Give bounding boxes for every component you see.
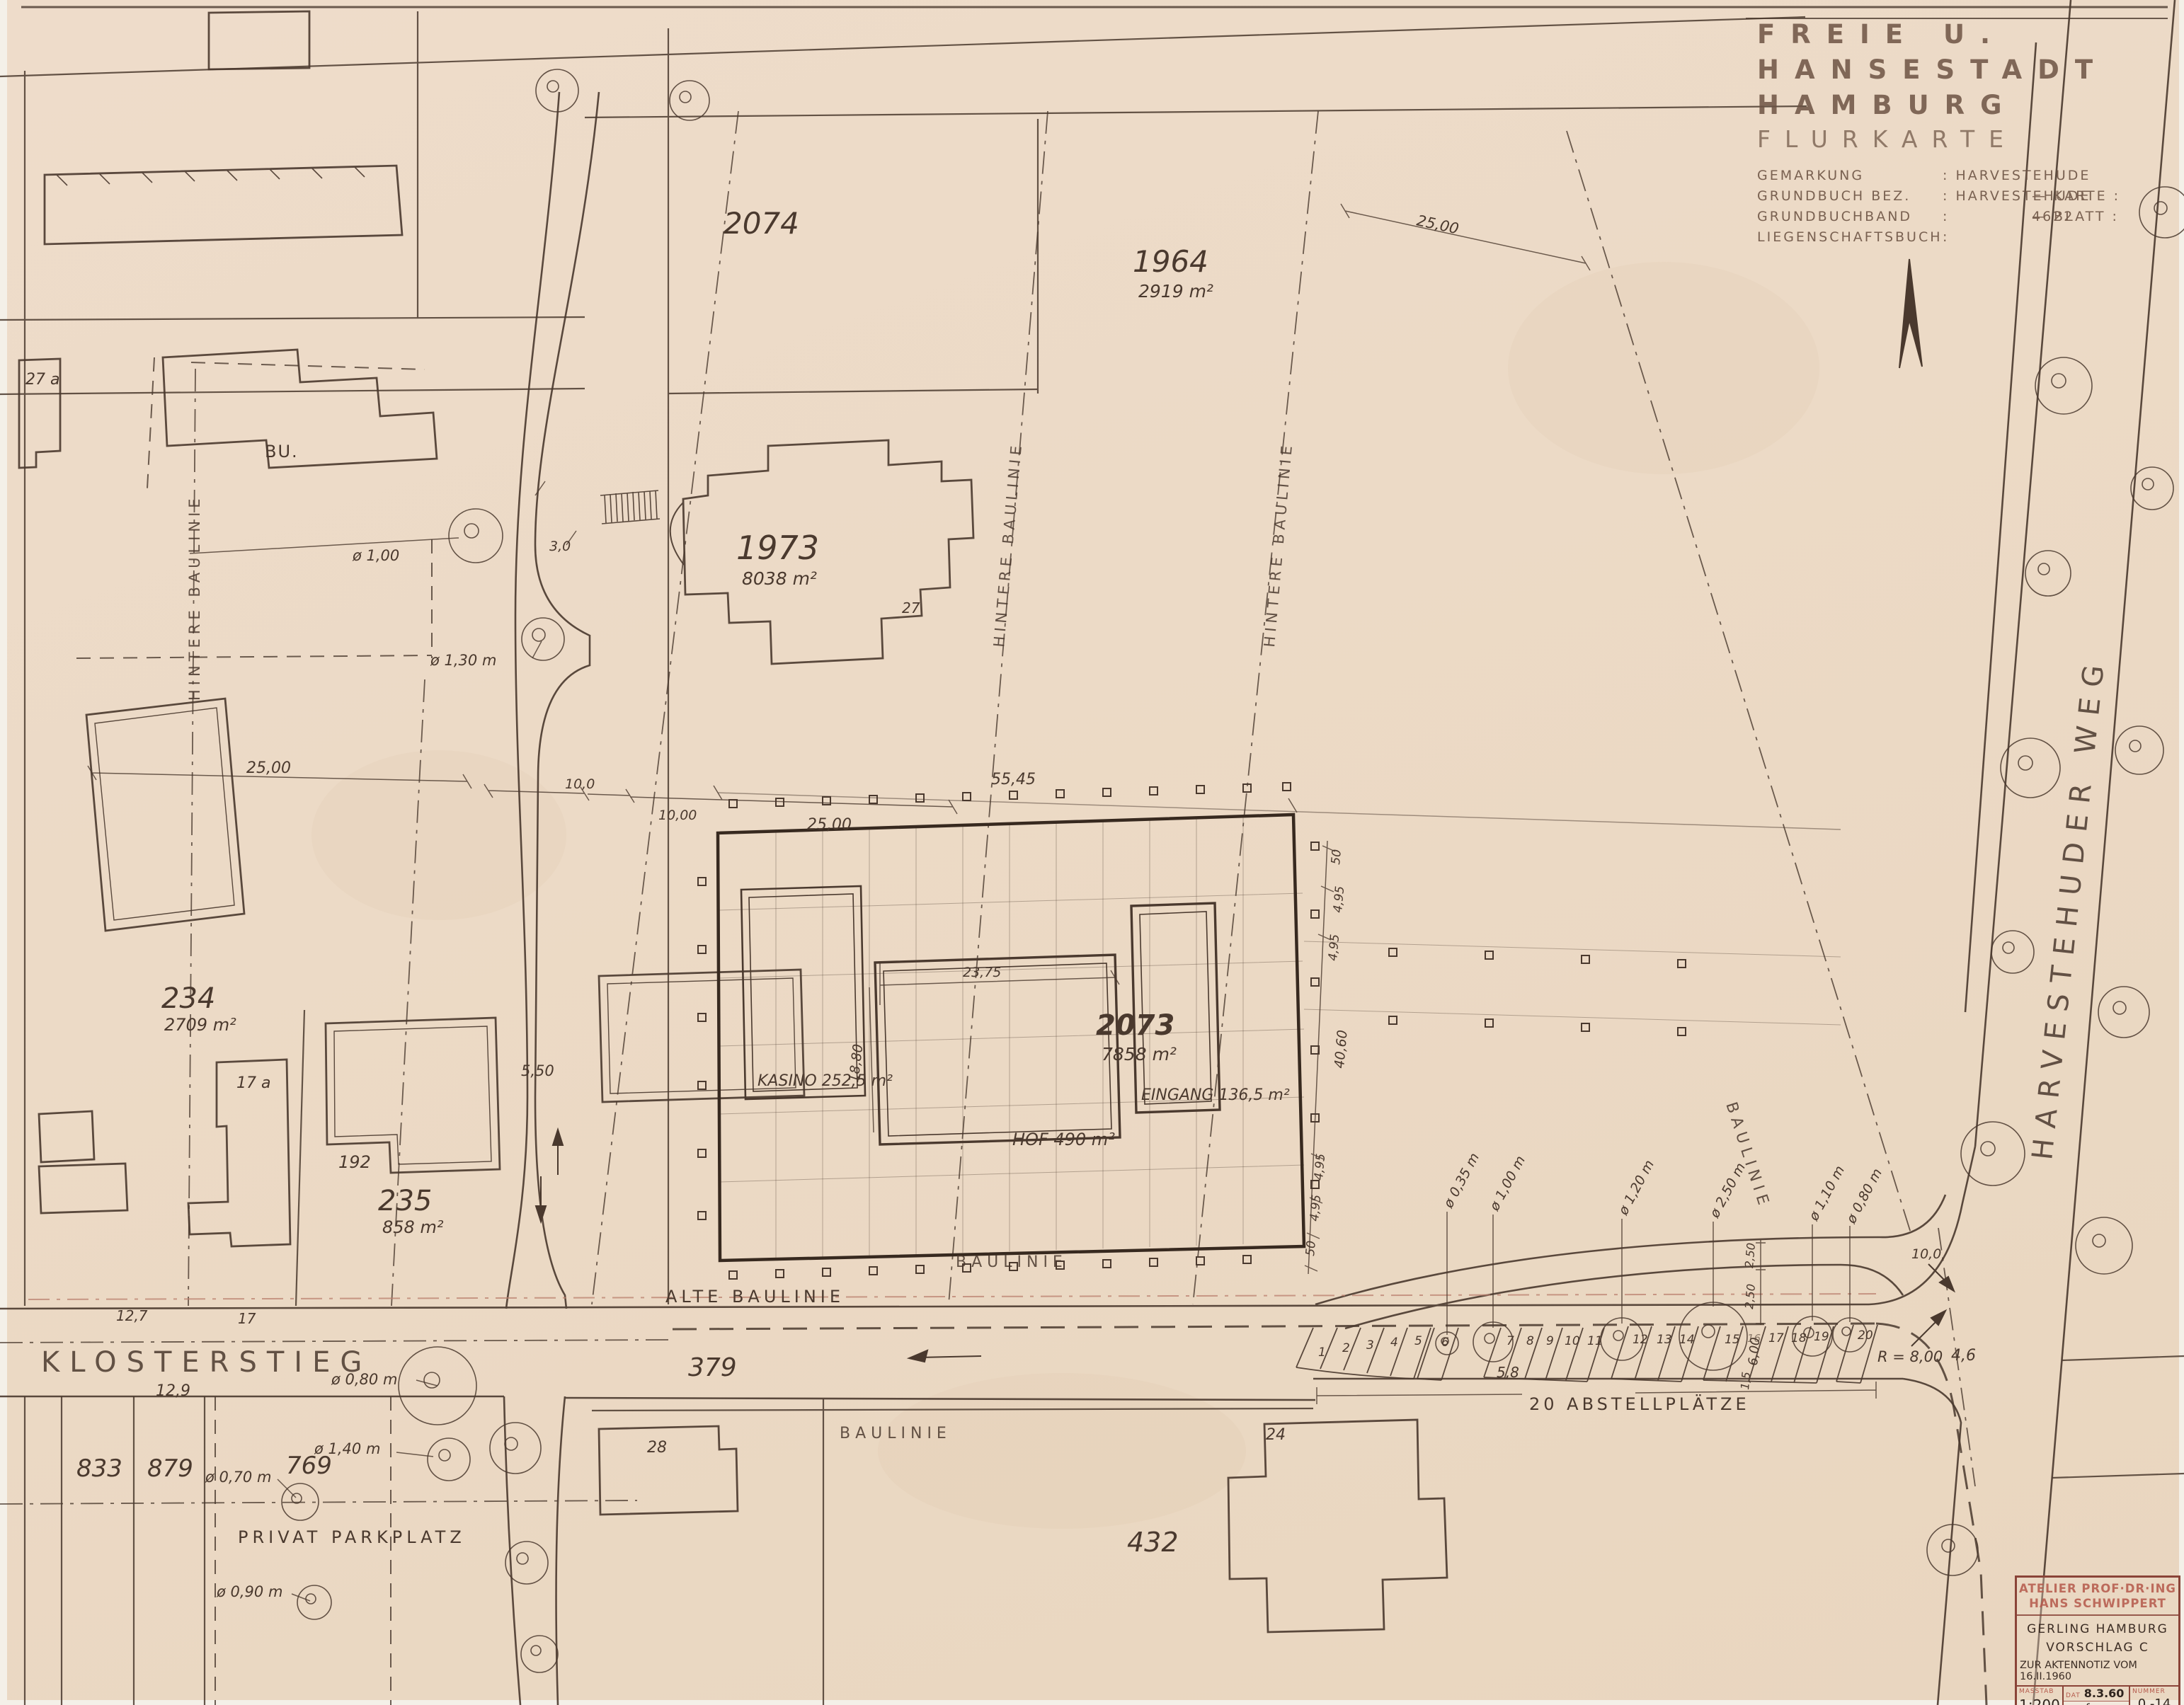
tree-label-9: ø 2,50 m [1707, 1160, 1749, 1221]
dim-46: 4,6 [1951, 1347, 1976, 1365]
parcel-2073: 2073 [1096, 1009, 1174, 1042]
parcel-235-area: 858 m² [382, 1217, 444, 1237]
building-24: 24 [1266, 1426, 1286, 1444]
dim-100-corner: 10,0 [1911, 1246, 1941, 1262]
parcel-432: 432 [1127, 1527, 1179, 1558]
field-gemarkung: GEMARKUNG : HARVESTEHUDE [1757, 166, 2154, 186]
dim-50b: 50 [1303, 1240, 1319, 1256]
stall-2: 2 [1342, 1341, 1350, 1355]
dim-495b: 4,95 [1326, 934, 1342, 961]
dim-50a: 50 [1329, 849, 1344, 865]
tree-label-4: ø 0,70 m [205, 1469, 271, 1486]
stamp-mid-cell: DAT 8.3.60 GEZ fe GRG 84/107 [2064, 1687, 2130, 1705]
stamp-gez-row: GEZ fe [2064, 1701, 2129, 1705]
street-klosterstieg: KLOSTERSTIEG [41, 1346, 372, 1379]
label-hintere-baulinie-left: HINTERE BAULINIE [186, 494, 203, 701]
stall-12: 12 [1633, 1333, 1648, 1347]
tree-label-7: ø 1,00 m [1487, 1153, 1529, 1214]
field-label: GEMARKUNG [1757, 166, 1943, 186]
field-note: — BLATT : [2032, 207, 2119, 227]
stamp-atelier: ATELIER PROF·DR·ING HANS SCHWIPPERT [2017, 1578, 2178, 1616]
field-label: LIEGENSCHAFTSBUCH [1757, 227, 1943, 248]
label-alte-baulinie: ALTE BAULINIE [665, 1287, 845, 1307]
street-dashed-line [673, 1324, 1986, 1705]
stall-7: 7 [1506, 1334, 1514, 1348]
building-28: 28 [647, 1439, 667, 1457]
building-bu: BU. [265, 442, 299, 461]
field-grundbuchband: GRUNDBUCHBAND : — BLATT : [1757, 207, 2154, 227]
stall-20: 20 [1858, 1328, 1873, 1343]
stamp-dat-value: 8.3.60 [2083, 1687, 2126, 1701]
label-baulinie-bottom: BAULINIE [840, 1425, 951, 1442]
dim-10a: 10,0 [565, 776, 595, 792]
stamp-atelier-line1: ATELIER PROF·DR·ING [2018, 1581, 2177, 1596]
parcel-879: 879 [147, 1454, 193, 1483]
stall-8: 8 [1526, 1334, 1534, 1348]
label-hintere-baulinie-d2: HINTERE BAULINIE [990, 441, 1025, 648]
label-kasino: KASINO 252,5 m² [757, 1072, 893, 1090]
central-building [698, 783, 1841, 1279]
stamp-project: GERLING HAMBURG VORSCHLAG C [2017, 1616, 2178, 1658]
building-192: 192 [338, 1152, 371, 1172]
tree-label-0: ø 1,00 [352, 547, 399, 564]
stamp-note: ZUR AKTENNOTIZ VOM 16.II.1960 [2017, 1658, 2178, 1687]
stamp-nummer-label: NUMMER [2130, 1687, 2178, 1695]
stall-6: 6 [1441, 1336, 1449, 1350]
plan-drawing: KLOSTERSTIEG HARVESTEHUDER WEG 2074 1964… [0, 0, 2184, 1705]
stamp-dat-label: DAT [2064, 1691, 2083, 1699]
dim-495d: 4,95 [1308, 1194, 1324, 1222]
buildings-outline [19, 11, 1447, 1632]
tree-label-3: ø 1,40 m [314, 1440, 380, 1457]
parcel-1973: 1973 [736, 529, 819, 567]
stamp-gez-value: fe [2083, 1701, 2097, 1705]
dim-250a: 2,50 [1742, 1242, 1758, 1268]
dim-58: 5,8 [1497, 1364, 1519, 1381]
title-line2: HAMBURG [1757, 88, 2154, 123]
tree-label-8: ø 1,20 m [1616, 1157, 1658, 1218]
dim-r800: R = 8,00 [1877, 1348, 1943, 1365]
tree-label-1: ø 1,30 m [430, 652, 496, 669]
label-hintere-baulinie-d3: HINTERE BAULINIE [1261, 441, 1296, 648]
field-value: : [1943, 207, 1949, 227]
dim-55: 55,45 [991, 771, 1036, 788]
stall-15: 15 [1725, 1333, 1740, 1347]
stamp-masstab-label: MASSTAB [2017, 1687, 2062, 1695]
parcel-235: 235 [378, 1185, 432, 1217]
dim-495a: 4,95 [1331, 885, 1347, 913]
stall-18: 18 [1791, 1331, 1807, 1345]
stall-16: 16 [1747, 1332, 1761, 1345]
label-eingang: EINGANG 136,5 m² [1141, 1086, 1290, 1104]
parcel-234: 234 [161, 982, 215, 1015]
building-27: 27 [902, 599, 920, 616]
parcel-379: 379 [688, 1353, 737, 1382]
column-grid-lines [719, 815, 1841, 1258]
title-line1: FREIE U. HANSESTADT [1757, 17, 2154, 88]
stall-11: 11 [1587, 1334, 1603, 1348]
alte-baulinie-line [28, 1294, 1876, 1299]
tree-label-10: ø 1,10 m [1806, 1163, 1848, 1224]
stamp-dat-row: DAT 8.3.60 [2064, 1687, 2129, 1701]
title-fields: GEMARKUNG : HARVESTEHUDE GRUNDBUCH BEZ. … [1757, 166, 2154, 248]
stamp-project-line2: VORSCHLAG C [2018, 1638, 2177, 1657]
dim-10b: 10,00 [658, 808, 697, 823]
dim-30: 3,0 [549, 539, 571, 554]
stall-10: 10 [1565, 1334, 1580, 1348]
tree-label-11: ø 0,80 m [1843, 1166, 1886, 1227]
label-hof: HOF 490 m² [1012, 1130, 1115, 1149]
stamp-table: MASSTAB 1:200 DAT 8.3.60 GEZ fe GRG 84/1… [2017, 1687, 2178, 1705]
dim-25-mid: 25,00 [807, 816, 852, 834]
stamp-masstab-value: 1:200 [2017, 1695, 2062, 1705]
dim-17: 17 [238, 1310, 256, 1327]
parcel-234-area: 2709 m² [164, 1015, 236, 1035]
dim-129: 12,9 [156, 1382, 190, 1400]
field-liegenschaftsbuch: LIEGENSCHAFTSBUCH : [1757, 227, 2154, 248]
parcel-1964: 1964 [1133, 244, 1208, 279]
field-value: : HARVESTEHUDE [1943, 166, 2091, 186]
title-block: FREIE U. HANSESTADT HAMBURG FLURKARTE GE… [1757, 17, 2154, 248]
stall-17: 17 [1768, 1331, 1784, 1345]
stall-9: 9 [1546, 1334, 1554, 1348]
dim-2375: 23,75 [963, 965, 1001, 980]
dim-15: 1,5 [1738, 1371, 1753, 1390]
dim-25-ne: 25,00 [1415, 212, 1460, 237]
parcel-1973-area: 8038 m² [742, 568, 817, 589]
stamp-nummer-value: 0 -14 [2130, 1695, 2178, 1705]
stamp-masstab-cell: MASSTAB 1:200 [2017, 1687, 2064, 1705]
label-privat-parkplatz: PRIVAT PARKPLATZ [238, 1527, 466, 1547]
column-squares [698, 783, 1686, 1279]
field-grundbuch-bez: GRUNDBUCH BEZ. : HARVESTEHUDE — KARTE : … [1757, 186, 2154, 207]
flurkarte-sheet: KLOSTERSTIEG HARVESTEHUDER WEG 2074 1964… [0, 0, 2184, 1705]
dim-25-left: 25,00 [246, 759, 291, 777]
parcel-2074: 2074 [724, 206, 799, 241]
stall-3: 3 [1366, 1338, 1374, 1353]
dim-250b: 2,50 [1742, 1283, 1758, 1309]
field-label: GRUNDBUCHBAND [1757, 207, 1943, 227]
dim-550: 5,50 [521, 1062, 554, 1079]
stall-5: 5 [1414, 1334, 1422, 1348]
tree-label-6: ø 0,35 m [1441, 1150, 1483, 1211]
stamp-project-line1: GERLING HAMBURG [2018, 1620, 2177, 1638]
parcel-2073-area: 7858 m² [1102, 1044, 1177, 1064]
building-27a: 27 a [25, 371, 59, 389]
stall-13: 13 [1657, 1333, 1672, 1347]
stamp-block: ATELIER PROF·DR·ING HANS SCHWIPPERT GERL… [2015, 1575, 2180, 1705]
field-value: : [1943, 227, 1949, 248]
building-17a: 17 a [236, 1074, 270, 1092]
stall-19: 19 [1814, 1330, 1829, 1344]
tree-label-2: ø 0,80 m [331, 1371, 397, 1388]
dim-4060: 40,60 [1332, 1029, 1351, 1069]
tree-label-5: ø 0,90 m [216, 1583, 282, 1600]
stall-1: 1 [1318, 1345, 1326, 1360]
field-label: GRUNDBUCH BEZ. [1757, 186, 1943, 207]
stamp-nummer-cell: NUMMER 0 -14 [2130, 1687, 2178, 1705]
parcel-1964-area: 2919 m² [1138, 281, 1213, 302]
north-arrow [1899, 259, 1922, 368]
label-baulinie-building: BAULINIE [956, 1253, 1068, 1271]
dim-495c: 4,95 [1312, 1153, 1328, 1181]
dim-127: 12,7 [116, 1307, 148, 1324]
label-abstellplaetze: 20 ABSTELLPLÄTZE [1529, 1394, 1750, 1414]
stall-14: 14 [1679, 1333, 1695, 1347]
title-line3: FLURKARTE [1757, 123, 2154, 156]
parcel-833: 833 [76, 1454, 122, 1483]
stall-4: 4 [1390, 1336, 1398, 1350]
stamp-atelier-line2: HANS SCHWIPPERT [2018, 1596, 2177, 1611]
